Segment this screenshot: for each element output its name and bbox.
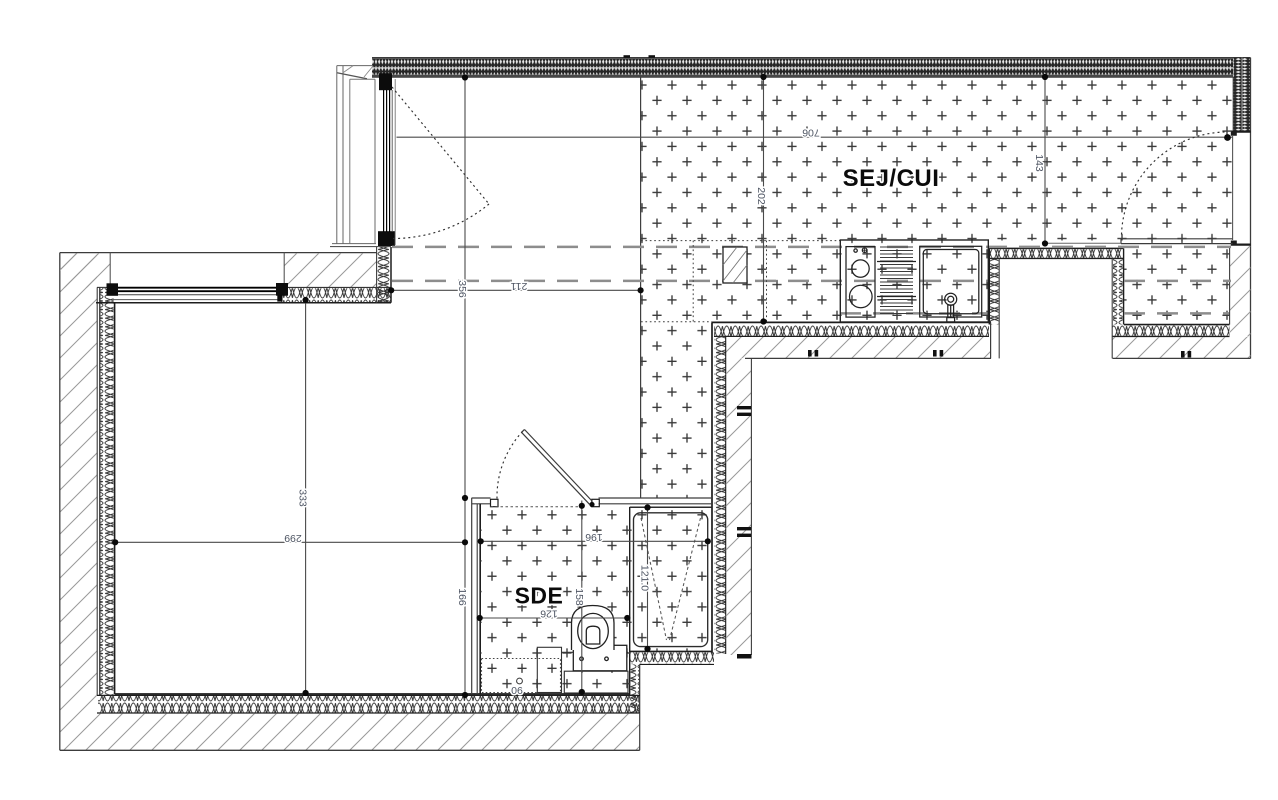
svg-text:143: 143: [1033, 154, 1045, 172]
svg-text:196: 196: [585, 531, 603, 543]
svg-text:126: 126: [540, 608, 558, 620]
svg-text:202: 202: [755, 187, 767, 205]
svg-text:SDE: SDE: [515, 583, 564, 609]
svg-text:333: 333: [297, 489, 309, 507]
svg-text:158: 158: [573, 588, 585, 606]
svg-text:299: 299: [284, 532, 302, 544]
svg-text:166: 166: [456, 588, 468, 606]
svg-text:706: 706: [802, 127, 820, 139]
svg-text:SEJ/CUI: SEJ/CUI: [843, 165, 940, 192]
svg-text:90: 90: [511, 684, 523, 696]
svg-text:121.0: 121.0: [639, 565, 651, 591]
svg-text:211: 211: [510, 280, 527, 292]
svg-text:356: 356: [456, 280, 468, 298]
